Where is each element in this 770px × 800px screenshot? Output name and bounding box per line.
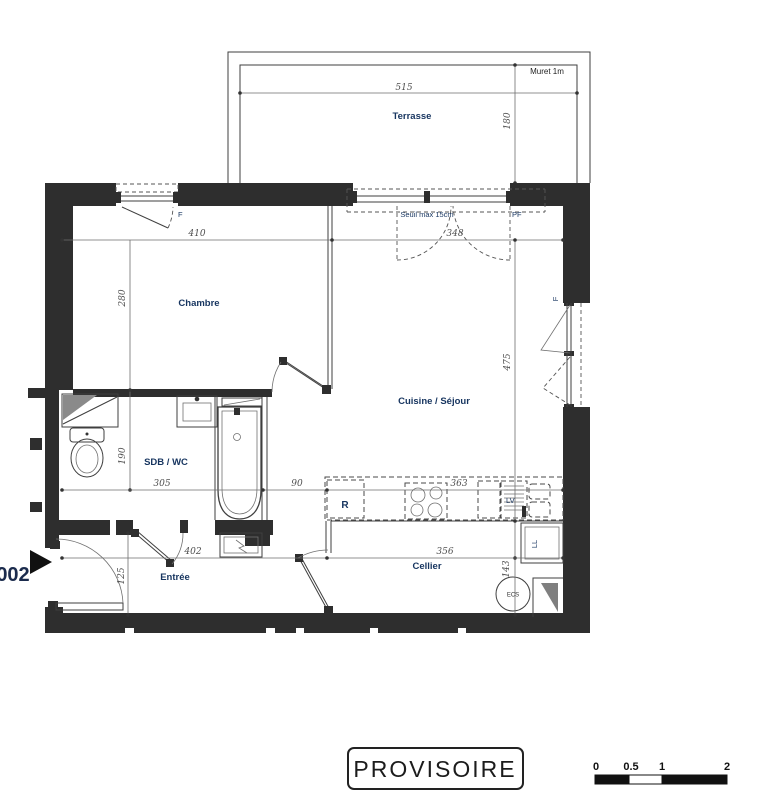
- vanity-unit: [62, 394, 118, 427]
- corner-duct: [533, 578, 563, 617]
- kitchen-counter: R LV: [325, 477, 563, 520]
- water-heater: ECS: [496, 577, 530, 611]
- cellier-width-dim: 356: [436, 547, 453, 557]
- chambre-window: F: [116, 184, 183, 228]
- passage-dim: 90: [291, 479, 303, 489]
- entree-width-dim: 402: [183, 547, 201, 557]
- basin-tap: [195, 397, 200, 402]
- floor-plan-drawing: 515 180 Muret 1m Terrasse: [0, 0, 770, 800]
- wall-entree-north-3: [180, 520, 188, 533]
- unit-number: 002: [0, 564, 30, 586]
- casement-swing-solid: [541, 305, 570, 353]
- threshold-note: Seuil max 15cm: [400, 210, 453, 219]
- cooktop: [405, 483, 447, 519]
- unit-arrow-icon: [30, 550, 52, 574]
- chambre-width-dim: 410: [187, 229, 205, 239]
- cellier-depth-dim: 143: [502, 560, 512, 577]
- chambre-door: [272, 357, 331, 394]
- water-heater-label: ECS: [507, 593, 519, 599]
- scale-tick-2: 2: [724, 761, 730, 773]
- exterior-stub-2: [30, 438, 42, 450]
- footer: PROVISOIRE 0 0.5 1 2: [348, 748, 730, 789]
- wall-right-upper: [563, 183, 590, 303]
- washbasin: [177, 396, 217, 427]
- tub-tap: [234, 408, 240, 415]
- sdb-door: [131, 529, 183, 567]
- vanity-corner-shade: [63, 395, 97, 420]
- entree-label: Entrée: [160, 572, 190, 583]
- chambre-label: Chambre: [178, 298, 219, 309]
- scale-tick-05: 0.5: [623, 761, 638, 773]
- casement-swing-dashed: [543, 357, 570, 405]
- kitchen-sink: [529, 484, 550, 517]
- counter-width-dim: 363: [450, 479, 467, 489]
- entry-door: [48, 539, 123, 610]
- wall-left-upper: [45, 183, 73, 390]
- counter-unit: [478, 481, 500, 518]
- entree-depth-dim: 125: [117, 567, 127, 584]
- wall-entree-north-2: [116, 520, 133, 535]
- terrace-depth-dim: 180: [503, 112, 513, 129]
- dishwasher-label: LV: [506, 496, 515, 505]
- cuisine-width-dim: 348: [446, 229, 463, 239]
- dishwasher: LV: [501, 481, 527, 518]
- fridge-box: [327, 480, 364, 518]
- window-swing-arc: [168, 207, 173, 228]
- wall-entree-north-1: [45, 520, 110, 535]
- stamp-text: PROVISOIRE: [353, 756, 516, 782]
- exterior-stub-3: [30, 502, 42, 512]
- scale-bar: 0 0.5 1 2: [593, 761, 730, 784]
- floor-plan-page: 515 180 Muret 1m Terrasse: [0, 0, 770, 800]
- fridge-label: R: [341, 500, 349, 511]
- sdb-width-dim: 305: [153, 479, 170, 489]
- scale-tick-1: 1: [659, 761, 665, 773]
- cuisine-height-dim: 475: [503, 353, 513, 371]
- sdb-wc-label: SDB / WC: [144, 457, 188, 468]
- chambre-window-label: F: [178, 210, 183, 219]
- window-swing-leaf: [122, 207, 168, 228]
- entry-door-leaf: [56, 603, 123, 610]
- terrace-width-dim: 515: [395, 83, 412, 93]
- terrace-label: Terrasse: [393, 111, 432, 122]
- side-window-label: F: [551, 296, 560, 301]
- washing-machine: LL: [521, 523, 563, 563]
- chambre-door-arc: [272, 362, 281, 392]
- entry-door-arc: [56, 539, 123, 603]
- wall-top-mid: [178, 183, 353, 206]
- muret-note: Muret 1m: [530, 67, 564, 76]
- room-labels: Chambre Cuisine / Séjour SDB / WC Entrée…: [144, 298, 470, 583]
- french-door-label: PF: [512, 210, 522, 219]
- scale-tick-0: 0: [593, 761, 599, 773]
- exterior-stub-1: [28, 388, 45, 398]
- cuisine-sejour-label: Cuisine / Séjour: [398, 396, 470, 407]
- bathtub: [218, 398, 262, 519]
- tub-drain: [234, 434, 241, 441]
- chambre-height-dim: 280: [118, 289, 128, 307]
- sejour-side-window: F: [541, 296, 581, 409]
- unit-marker: 002: [0, 550, 52, 586]
- toilet: [70, 428, 104, 477]
- sdb-depth-dim: 190: [118, 447, 128, 464]
- window-sill-dashed: [116, 184, 178, 192]
- terrace: 515 180 Muret 1m Terrasse: [228, 52, 590, 185]
- dimension-lines: 410 348 280 190 475 143 305 90 363 402 3…: [60, 229, 565, 617]
- cellier-label: Cellier: [412, 561, 441, 572]
- wall-sdb-top: [73, 389, 272, 397]
- wall-right-lower: [563, 407, 590, 633]
- washing-machine-label: LL: [530, 540, 539, 548]
